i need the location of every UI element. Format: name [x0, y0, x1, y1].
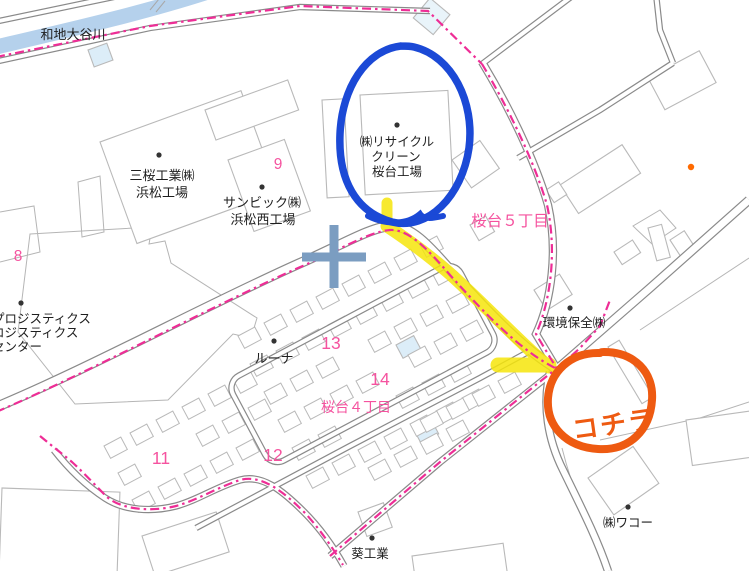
boundary-lines	[0, 6, 610, 565]
parcel-blue	[88, 43, 113, 67]
poi-dot-orange	[688, 164, 694, 170]
poi-label-recycle: ㈱リサイクル	[360, 135, 434, 149]
house	[316, 288, 339, 309]
house	[358, 441, 381, 462]
poi-label-luna: ルーナ	[254, 351, 293, 366]
kochira-label: コチラ	[570, 404, 657, 445]
poi-dot	[394, 122, 399, 127]
building	[0, 488, 120, 571]
poi-label-kankyo: 環境保全㈱	[543, 315, 606, 330]
poi-dot	[259, 184, 264, 189]
poi-dot	[369, 535, 374, 540]
poi-label-sanoh: 三桜工業㈱	[129, 168, 194, 183]
river-label: 和地大谷川	[40, 27, 105, 42]
building	[648, 224, 670, 260]
poi-label-sanoh: 浜松工場	[136, 185, 188, 200]
poi-label-logistics: ロジスティクス	[0, 326, 78, 340]
house	[182, 398, 205, 419]
parcel-blue	[413, 0, 450, 35]
poi-label-sunbic: 浜松西工場	[230, 212, 295, 227]
house	[208, 385, 231, 406]
house	[342, 275, 365, 296]
house	[394, 446, 417, 467]
map-canvas[interactable]: 和地大谷川 三桜工業㈱ 浜松工場 サンビック㈱ 浜松西工場 ㈱リサイクル クリー…	[0, 0, 749, 571]
house	[316, 357, 339, 378]
poi-label-recycle: クリーン	[371, 150, 420, 164]
house	[290, 301, 313, 322]
block-number-14: 14	[370, 369, 390, 389]
house	[238, 327, 261, 348]
poi-label-sunbic: サンビック㈱	[223, 195, 301, 210]
poi-dot	[18, 300, 23, 305]
block-number-12: 12	[263, 445, 282, 465]
house	[184, 465, 207, 486]
house	[420, 305, 443, 326]
block-number-8: 8	[14, 248, 23, 265]
house	[196, 425, 219, 446]
house	[368, 459, 391, 480]
block-number-11: 11	[152, 448, 170, 468]
block-number-9: 9	[274, 156, 283, 173]
house	[118, 464, 141, 485]
house	[498, 372, 521, 393]
building	[560, 145, 641, 214]
building	[686, 411, 749, 466]
district-label-sakuradai5: 桜台５丁目	[471, 212, 549, 230]
poi-dot	[271, 338, 276, 343]
house	[290, 370, 313, 391]
house	[384, 428, 407, 449]
poi-dot	[567, 305, 572, 310]
house	[434, 333, 457, 354]
house	[156, 411, 179, 432]
poi-label-aoi: 葵工業	[351, 546, 389, 561]
block-number-13: 13	[321, 333, 340, 353]
poi-dot	[156, 152, 161, 157]
poi-label-logistics: プロジスティクス	[0, 312, 91, 326]
house	[264, 314, 287, 335]
building-wako	[588, 446, 659, 514]
house	[104, 437, 127, 458]
house	[130, 424, 153, 445]
house	[158, 478, 181, 499]
map-svg: 和地大谷川 三桜工業㈱ 浜松工場 サンビック㈱ 浜松西工場 ㈱リサイクル クリー…	[0, 0, 749, 571]
building	[648, 51, 716, 110]
poi-label-wako: ㈱ワコー	[603, 516, 653, 530]
house	[368, 331, 391, 352]
poi-label-recycle: 桜台工場	[372, 164, 422, 179]
poi-label-logistics: センター	[0, 340, 42, 354]
district-label-sakuradai4: 桜台４丁目	[321, 399, 391, 415]
house	[460, 320, 483, 341]
house	[368, 262, 391, 283]
building	[614, 240, 641, 265]
house	[264, 383, 287, 404]
house	[210, 452, 233, 473]
house	[248, 399, 271, 420]
poi-dot	[625, 504, 630, 509]
building	[412, 543, 509, 571]
house	[278, 411, 301, 432]
